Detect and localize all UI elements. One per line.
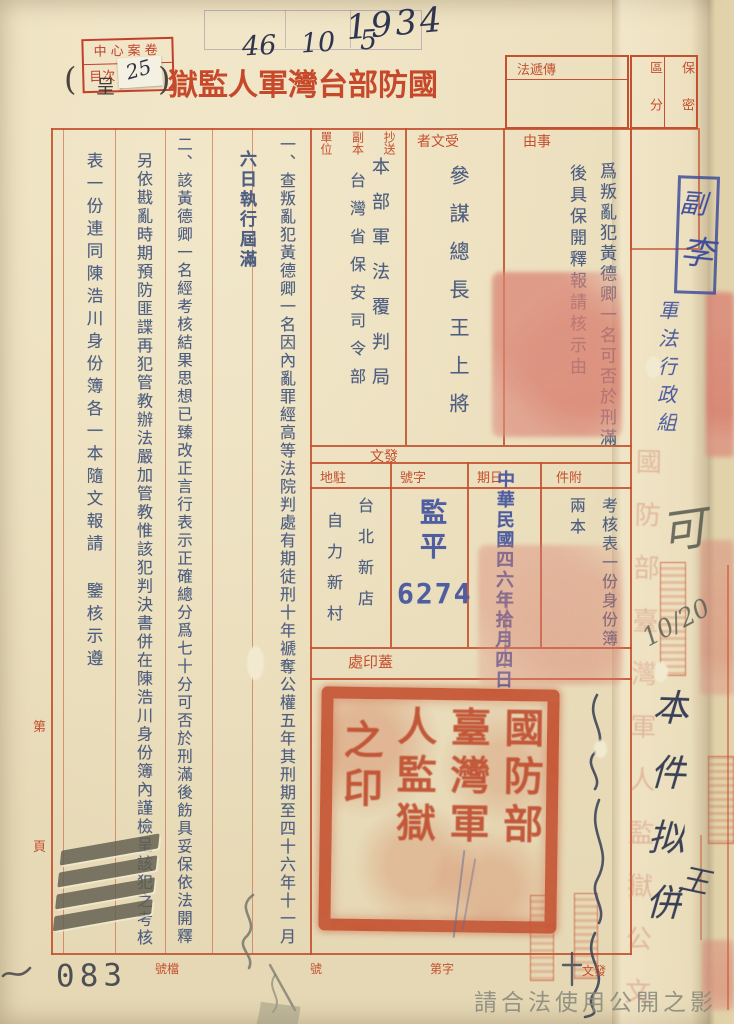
seal-col-4: 之印 — [336, 719, 383, 816]
secrecy-col-left: 區分 — [633, 57, 664, 127]
recipient-label: 者文受 — [405, 131, 503, 151]
body-col-2: 六日執行屆滿 — [234, 150, 259, 270]
form-line — [51, 128, 632, 130]
note-handwriting: 本件拟併 — [631, 687, 694, 949]
small-red-stamp-right-page — [708, 756, 734, 844]
attachment-label: 件附 — [540, 467, 630, 486]
scanned-document-page: 1934 46 10 5 中心案卷 目次 25 ( 呈 ) 獄監人軍灣台部防國 … — [0, 0, 734, 1024]
dispatch-bottom-label: 文發 — [582, 962, 616, 979]
transmission-box: 法遞傳 — [505, 55, 629, 129]
form-line — [310, 487, 632, 489]
recipient-text: 參謀總長王上將 — [444, 165, 473, 431]
cc-label-unit: 單位 — [319, 131, 333, 155]
paper-flaw — [247, 646, 264, 680]
body-col-1: 一、查叛亂犯黃德卿一名因內亂罪經高等法院判處有期徒刑十年褫奪公權五年其刑期至四十… — [274, 136, 298, 946]
cc-text-line2: 台灣省保安司令部 — [344, 172, 368, 396]
paper-flaw — [594, 740, 607, 758]
secrecy-col-right: 保密 — [664, 57, 696, 127]
cc-label-duplicate: 副本 — [350, 131, 364, 155]
station-line2: 自力新村 — [321, 512, 345, 636]
station-line1: 台北新店 — [352, 497, 376, 621]
body-col-5: 表一份連同陳浩川身份簿各一本隨文報請 鑒核示遵 — [81, 152, 105, 672]
signature-box-char-bottom: 李 — [679, 224, 717, 275]
page-number-stamp: 083 — [56, 957, 128, 994]
seal-col-1: 國防部 — [496, 707, 544, 852]
number-label: 號字 — [390, 467, 467, 486]
sticker: 25 — [117, 56, 163, 89]
doc-number-label: 第字 — [430, 960, 464, 977]
usage-watermark: 請合法使用公開之影像 — [474, 983, 734, 1024]
form-line — [390, 462, 392, 647]
pink-stamp-lower — [478, 545, 623, 685]
small-red-stamp-2 — [530, 895, 554, 981]
secrecy-box: 保密 區分 — [630, 55, 698, 129]
cc-labels: 抄送 副本 單位 — [310, 131, 405, 155]
archives-logo-book-icon — [49, 830, 183, 978]
form-line — [405, 128, 407, 445]
title-paren-open: ( — [64, 60, 76, 98]
pink-stamp-upper — [492, 272, 622, 437]
cc-label-copy: 抄送 — [382, 131, 396, 155]
dispatch-label: 文發 — [310, 446, 632, 466]
cc-text-line1: 本部軍法覆判局 — [366, 157, 392, 402]
approve-handwriting: 可 — [656, 491, 711, 563]
number-suffix-label: 號 — [310, 960, 322, 977]
number-digits-stamp: 6274 — [397, 577, 472, 610]
handwritten-date: 46 10 5 — [241, 24, 377, 62]
paper-flaw — [646, 356, 661, 378]
station-label: 地駐 — [310, 467, 390, 486]
form-line — [467, 462, 469, 647]
pink-stamp-right-edge-1 — [706, 292, 734, 457]
backpage-rule — [727, 565, 729, 1010]
seal-col-3: 人監獄 — [389, 705, 437, 850]
paper-flaw — [654, 662, 668, 682]
number-word-stamp: 監平 — [411, 498, 450, 566]
title-submit-char: 呈 — [96, 72, 115, 99]
attachment-line2: 兩本 — [564, 497, 588, 539]
seal-col-2: 臺灣軍 — [442, 706, 490, 851]
signature-box-char-top: 副 — [679, 181, 709, 222]
form-line — [310, 128, 312, 955]
official-square-seal: 國防部 臺灣軍 人監獄 之印 — [318, 686, 559, 933]
page-no-prefix: 第 — [33, 716, 46, 735]
subject-label: 由事 — [505, 131, 630, 151]
transmission-label: 法遞傳 — [507, 57, 627, 80]
